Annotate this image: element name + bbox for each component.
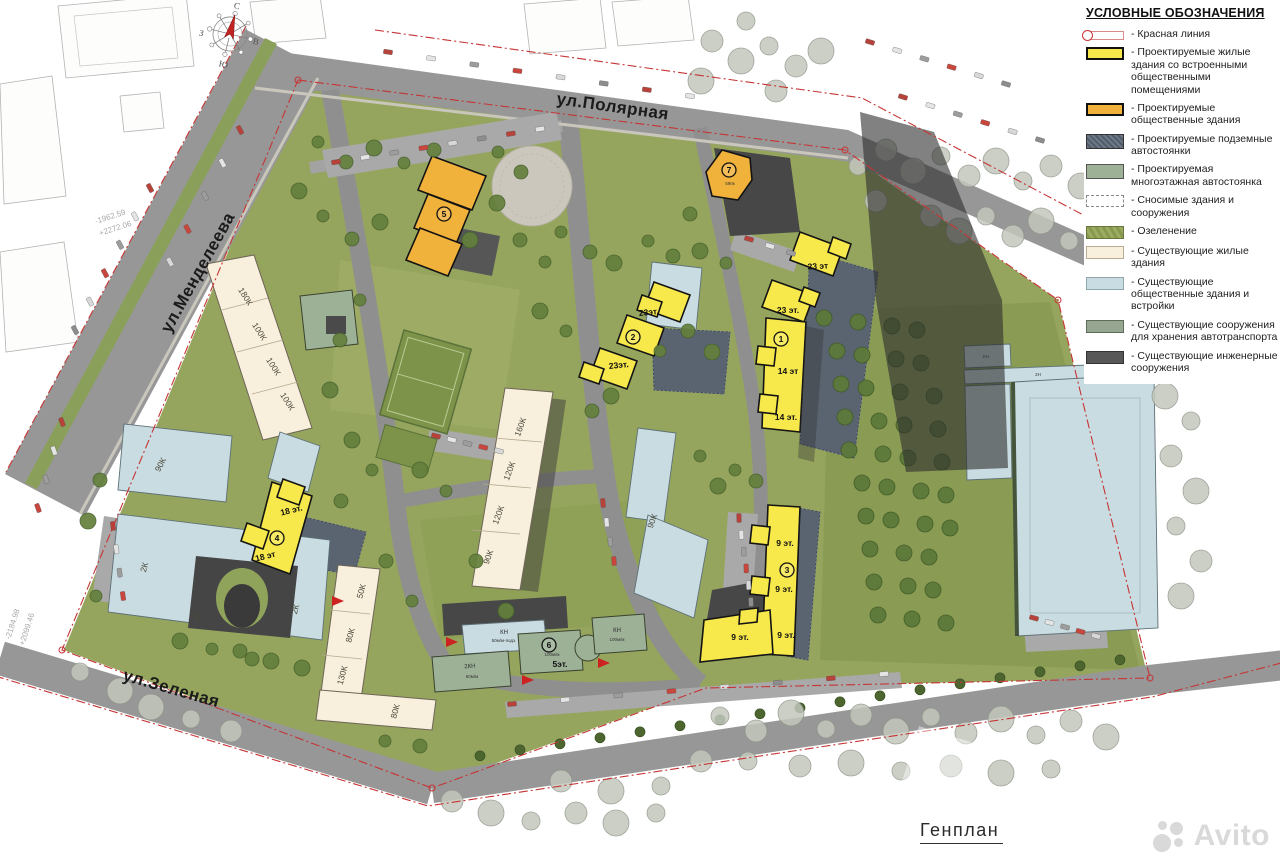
underground-parking-swatch bbox=[1086, 134, 1124, 149]
avito-logo-icon bbox=[1153, 818, 1189, 854]
existing-garages-swatch bbox=[1086, 320, 1124, 333]
legend-item-demolished: - Сносимые здания и сооружения bbox=[1086, 194, 1280, 219]
building-number-4: 4 bbox=[270, 531, 284, 545]
svg-text:4: 4 bbox=[275, 533, 280, 543]
b6-floors: 5эт. bbox=[552, 659, 567, 669]
b3-floors: 9 эт. bbox=[776, 538, 793, 548]
svg-text:5: 5 bbox=[442, 209, 447, 219]
b3-floors: 9 эт. bbox=[777, 630, 794, 640]
legend-item-red-line: - Красная линия bbox=[1086, 28, 1280, 40]
legend-title: УСЛОВНЫЕ ОБОЗНАЧЕНИЯ bbox=[1086, 6, 1280, 20]
kn-cap: 50м/м-подз. bbox=[492, 638, 517, 643]
legend-item-proposed-public: - Проектируемые общественные здания bbox=[1086, 102, 1280, 127]
building-number-5: 5 bbox=[437, 207, 451, 221]
survey-coord: +2099.46 bbox=[17, 611, 36, 646]
k-label: 2Н bbox=[1035, 372, 1041, 377]
existing-public-swatch bbox=[1086, 277, 1124, 290]
avito-watermark-text: Avito bbox=[1194, 819, 1270, 853]
multilevel-parking-swatch bbox=[1086, 164, 1124, 179]
b1-floors: 23 эт. bbox=[777, 305, 799, 315]
existing-residential-swatch bbox=[1086, 246, 1124, 259]
legend-item-underground-parking: - Проектируемые подземные автостоянки bbox=[1086, 133, 1280, 158]
k-label: КН bbox=[983, 354, 989, 359]
svg-text:7: 7 bbox=[727, 165, 732, 175]
building-number-6: 6 bbox=[542, 638, 556, 652]
building-number-2: 2 bbox=[626, 330, 640, 344]
b2-floors: 23эт. bbox=[608, 359, 629, 371]
genplan-page: 14 эт 14 эт ул.Полярная ул.Менделеева ул… bbox=[0, 0, 1280, 861]
legend: УСЛОВНЫЕ ОБОЗНАЧЕНИЯ - Красная линия - П… bbox=[1084, 4, 1280, 384]
proposed-residential-swatch bbox=[1086, 47, 1124, 60]
red-line-swatch bbox=[1086, 31, 1124, 40]
existing-engineering-swatch bbox=[1086, 351, 1124, 364]
avito-watermark: Avito bbox=[1153, 818, 1270, 854]
legend-item-existing-residential: - Существующие жилые здания bbox=[1086, 245, 1280, 270]
b1-floors: 23 эт bbox=[807, 260, 828, 271]
svg-text:6: 6 bbox=[547, 640, 552, 650]
b2-floors: 23эт. bbox=[638, 306, 659, 318]
b6-capacity: 100м/м bbox=[545, 652, 560, 657]
building-number-7: 7 bbox=[722, 163, 736, 177]
svg-text:1: 1 bbox=[779, 334, 784, 344]
b3-floors: 9 эт. bbox=[775, 584, 792, 594]
b1-floors: 14 эт. bbox=[775, 412, 797, 422]
svg-text:3: 3 bbox=[785, 565, 790, 575]
b7-capacity: 590к bbox=[725, 181, 735, 186]
legend-item-greenery: - Озеленение bbox=[1086, 225, 1280, 239]
page-title: Генплан bbox=[920, 820, 1003, 844]
kn-cap: 100м/м bbox=[610, 637, 625, 642]
kindergarten bbox=[118, 424, 232, 502]
compass-north: С bbox=[233, 0, 241, 11]
legend-item-multilevel-parking: - Проектируемая многоэтажная автостоянка bbox=[1086, 163, 1280, 188]
existing-public-complex bbox=[1014, 374, 1158, 636]
compass-west: З bbox=[198, 28, 205, 39]
greenery-swatch bbox=[1086, 226, 1124, 239]
b1-floors: 14 эт bbox=[778, 366, 799, 376]
kn-cap: 60м/м bbox=[466, 674, 478, 679]
kn-label: 2КН bbox=[464, 664, 475, 671]
legend-item-existing-public: - Существующие общественные здания и вст… bbox=[1086, 276, 1280, 313]
kn-label: КН bbox=[613, 628, 621, 634]
legend-item-existing-engineering: - Существующие инженерные сооружения bbox=[1086, 350, 1280, 375]
b3-floors: 9 эт. bbox=[731, 632, 748, 642]
building-number-1: 1 bbox=[774, 332, 788, 346]
demolished-swatch bbox=[1086, 195, 1124, 207]
proposed-public-swatch bbox=[1086, 103, 1124, 116]
svg-text:2: 2 bbox=[631, 332, 636, 342]
legend-item-proposed-residential: - Проектируемые жилые здания со встроенн… bbox=[1086, 46, 1280, 96]
legend-item-existing-garages: - Существующие сооружения для хранения а… bbox=[1086, 319, 1280, 344]
building-number-3: 3 bbox=[780, 563, 794, 577]
kn-label: КН bbox=[500, 630, 508, 636]
